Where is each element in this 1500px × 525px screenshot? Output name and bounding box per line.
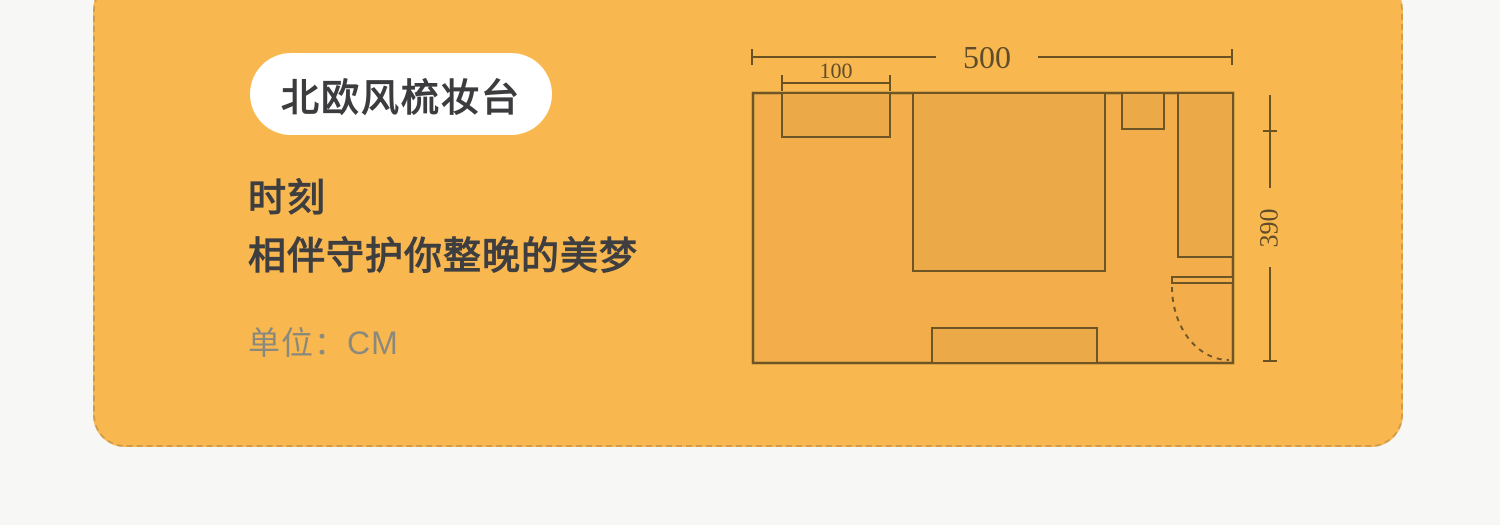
tagline-line2: 相伴守护你整晚的美梦 <box>248 228 638 286</box>
product-badge: 北欧风梳妆台 <box>250 53 552 135</box>
tagline: 时刻 相伴守护你整晚的美梦 <box>248 170 638 286</box>
tv-stand-rect <box>932 328 1097 363</box>
unit-note: 单位：CM <box>248 318 399 364</box>
dimension-label-390: 390 <box>1255 209 1284 248</box>
dimension-label-500: 500 <box>963 39 1011 75</box>
product-badge-label: 北欧风梳妆台 <box>281 67 521 122</box>
dressing-table-rect <box>782 93 890 137</box>
wardrobe-rect <box>1178 93 1233 257</box>
floor-plan-diagram: 500 100 390 <box>730 30 1310 380</box>
nightstand-rect <box>1122 93 1164 129</box>
dimension-label-100: 100 <box>820 58 853 83</box>
bed-rect <box>913 93 1105 271</box>
door-leaf <box>1172 277 1233 283</box>
tagline-line1: 时刻 <box>248 170 638 228</box>
